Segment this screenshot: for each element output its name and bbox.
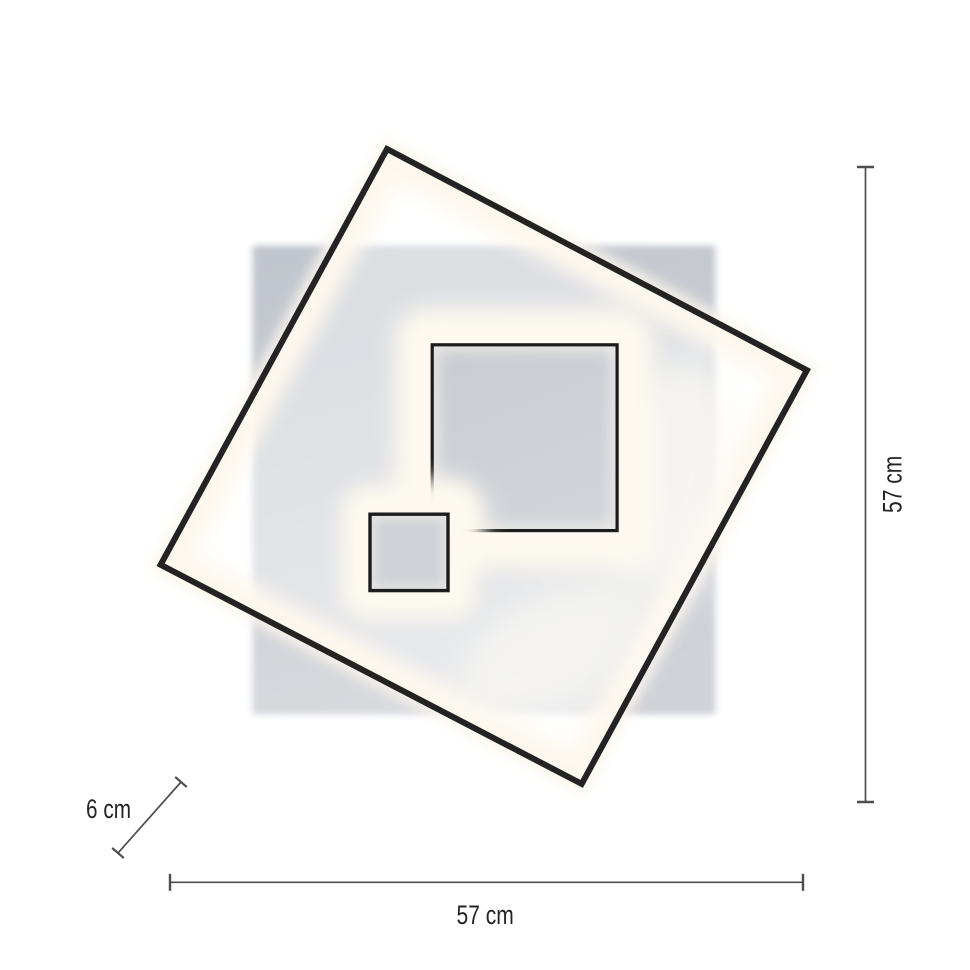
svg-text:6 cm: 6 cm bbox=[86, 794, 131, 824]
svg-text:57 cm: 57 cm bbox=[457, 900, 514, 930]
svg-text:57 cm: 57 cm bbox=[878, 456, 908, 513]
